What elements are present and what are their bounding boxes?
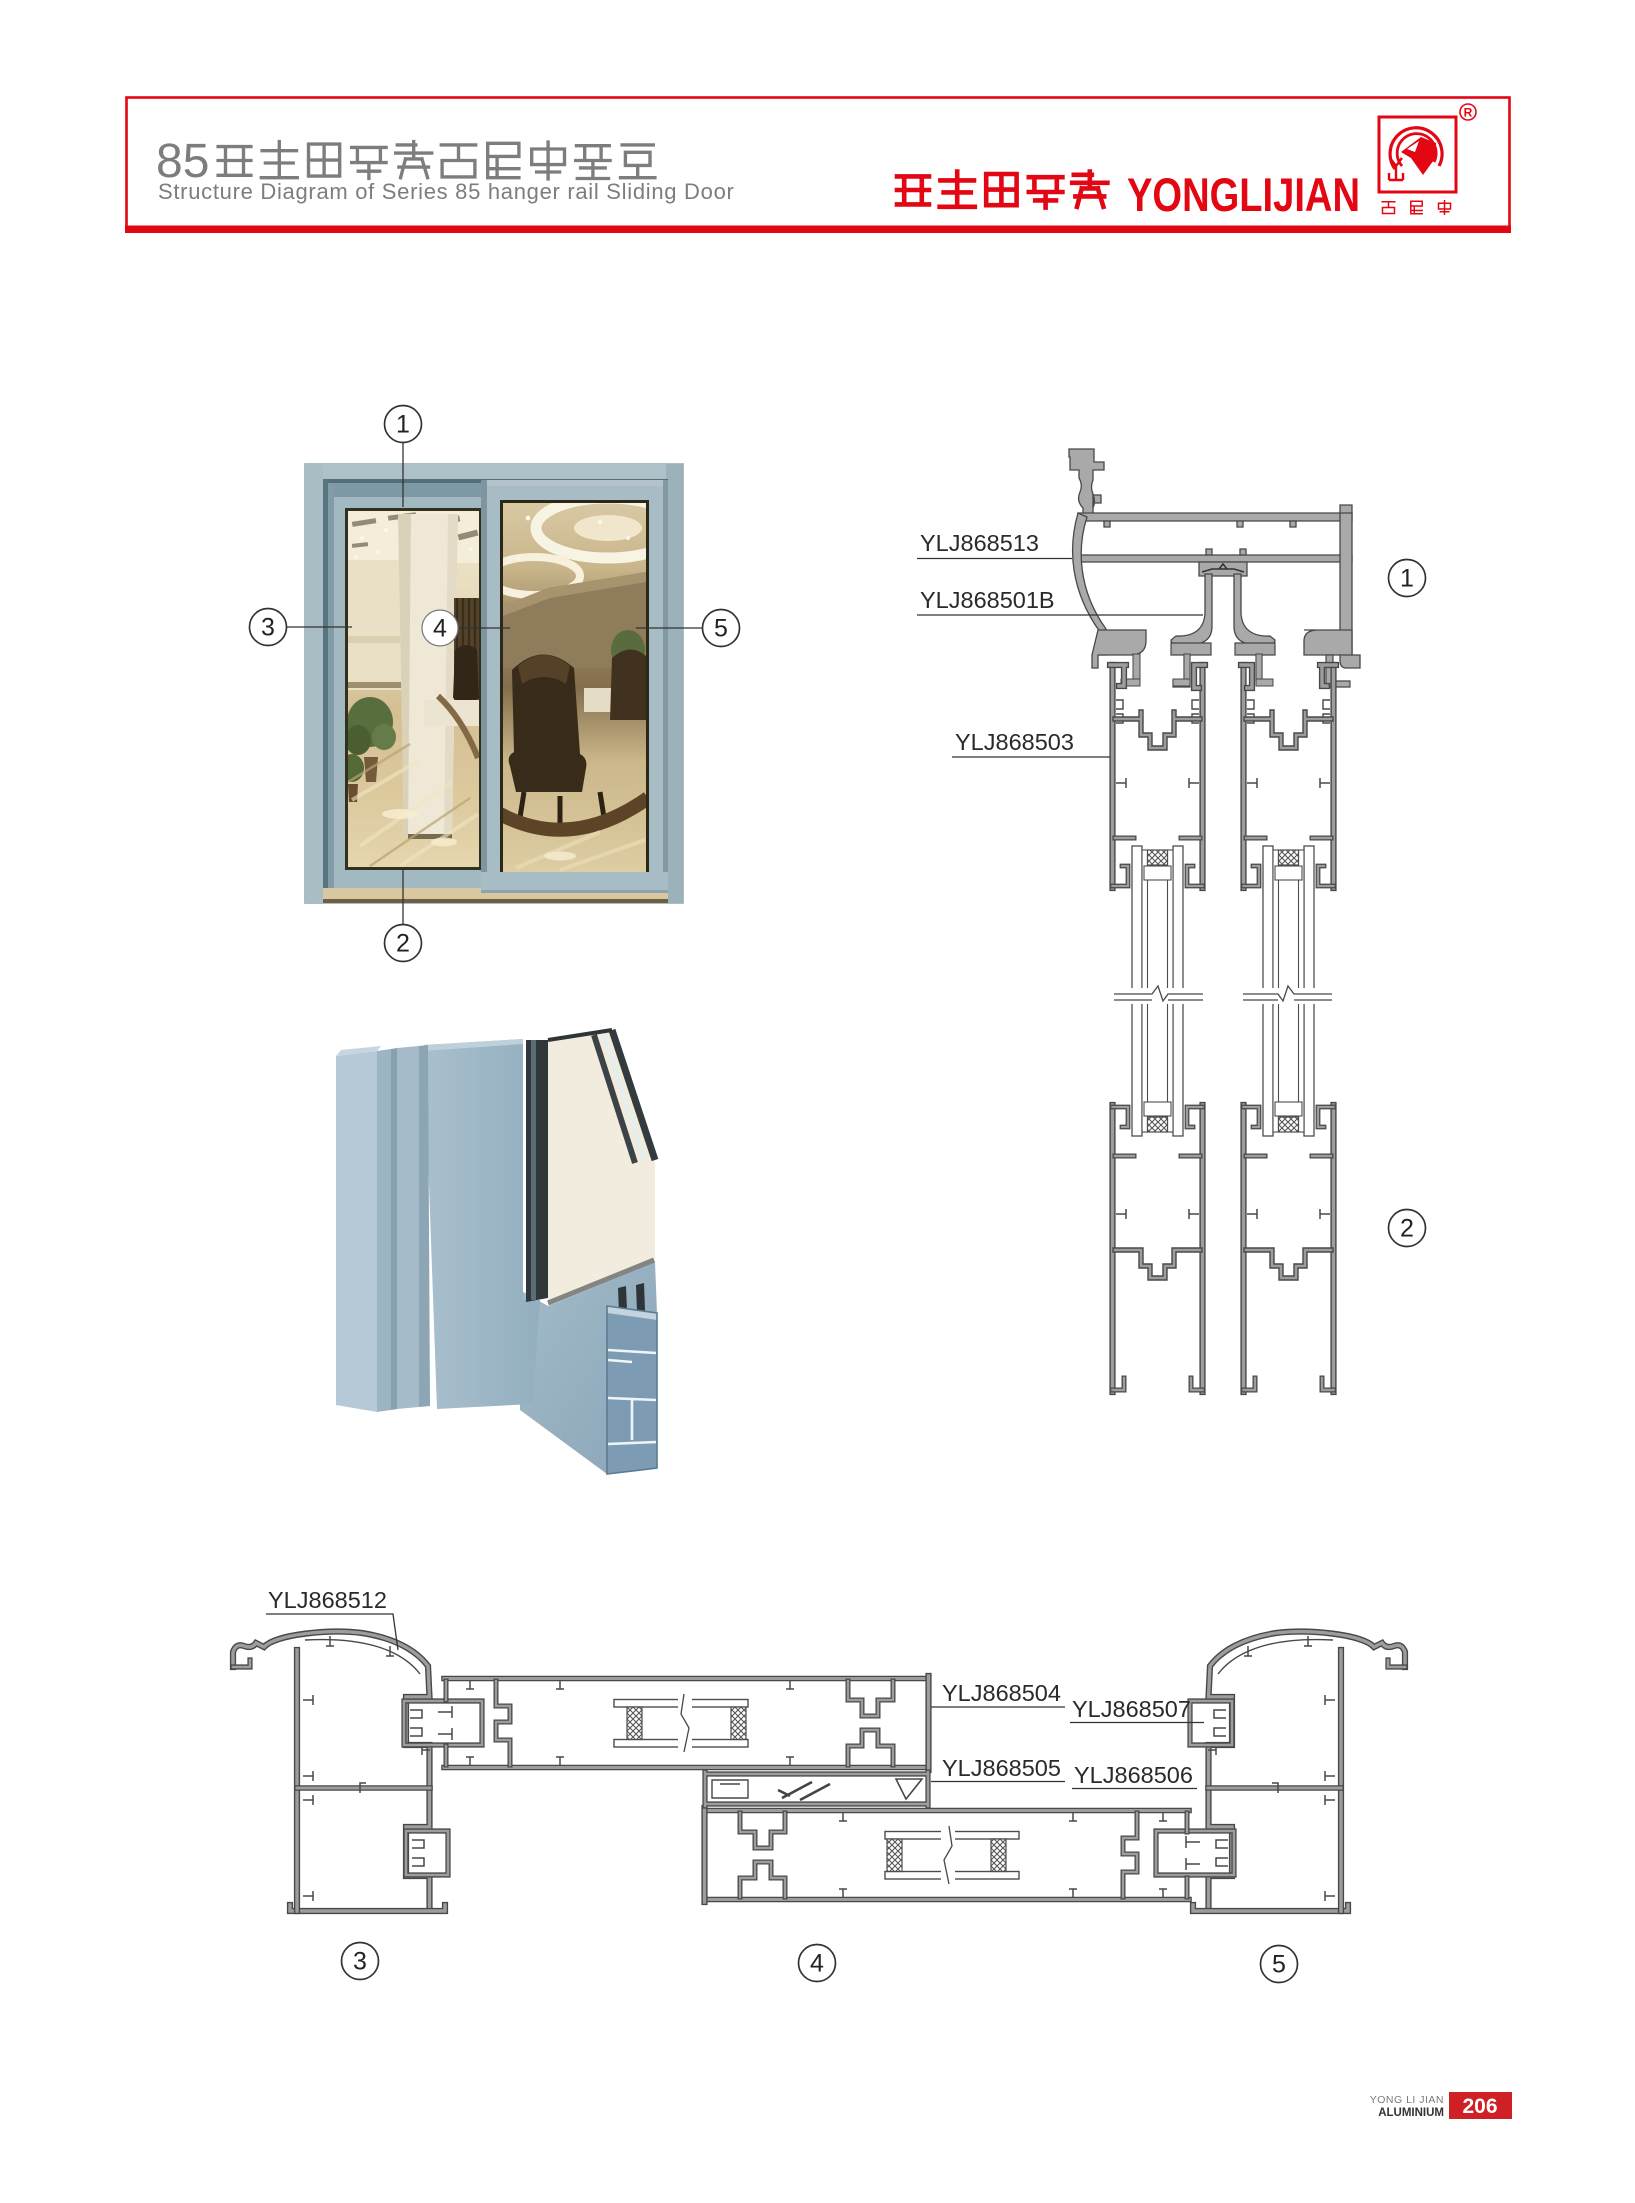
svg-text:3: 3 [353,1948,367,1976]
svg-text:YLJ868501B: YLJ868501B [920,587,1055,613]
svg-text:1: 1 [1400,565,1414,593]
svg-text:Structure Diagram of Series 85: Structure Diagram of Series 85 hanger ra… [158,179,735,204]
svg-text:3: 3 [261,614,275,642]
svg-text:206: 206 [1462,2095,1497,2118]
svg-text:YLJ868507: YLJ868507 [1072,1696,1191,1722]
svg-text:YONGLIJIAN: YONGLIJIAN [1127,168,1360,221]
svg-text:2: 2 [1400,1215,1414,1243]
svg-text:YLJ868505: YLJ868505 [942,1755,1061,1781]
svg-text:YLJ868512: YLJ868512 [268,1587,387,1613]
svg-text:YLJ868506: YLJ868506 [1074,1762,1193,1788]
svg-text:4: 4 [810,1950,824,1978]
svg-text:4: 4 [433,615,447,643]
svg-text:YONG LI JIAN: YONG LI JIAN [1370,2094,1444,2106]
svg-text:YLJ868504: YLJ868504 [942,1680,1061,1706]
svg-text:YLJ868513: YLJ868513 [920,530,1039,556]
svg-text:5: 5 [714,615,728,643]
svg-text:YLJ868503: YLJ868503 [955,729,1074,755]
svg-text:2: 2 [396,930,410,958]
svg-text:R: R [1464,106,1473,120]
svg-text:5: 5 [1272,1951,1286,1979]
svg-text:ALUMINIUM: ALUMINIUM [1378,2107,1444,2119]
svg-text:1: 1 [396,411,410,439]
